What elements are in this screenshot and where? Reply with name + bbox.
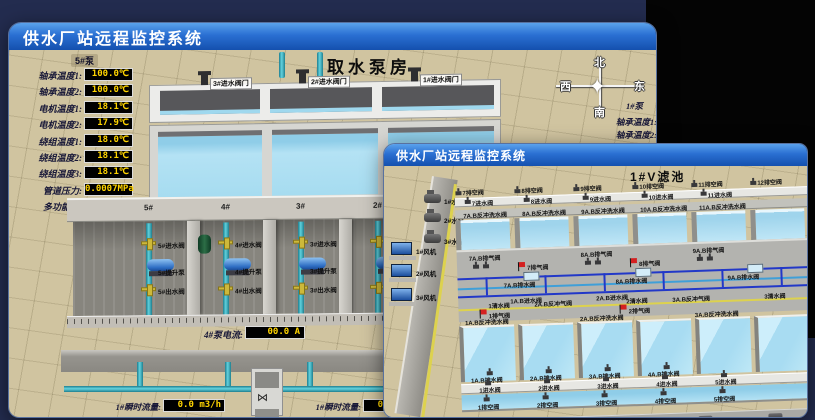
empty-valve-label[interactable]: 5排空阀 bbox=[714, 394, 736, 404]
inlet-valve-icon[interactable] bbox=[141, 241, 156, 245]
lcd-readout: 18.1℃ bbox=[84, 166, 133, 179]
lcd-readout: 100.0℃ bbox=[84, 68, 133, 81]
empty-valve-icon[interactable] bbox=[602, 393, 608, 397]
drain-valve-icon[interactable] bbox=[455, 191, 461, 195]
water-channel bbox=[272, 128, 378, 196]
drain-valve-icon[interactable] bbox=[750, 181, 756, 185]
pipe-riser bbox=[603, 273, 606, 291]
inlet-valve-label[interactable]: 4进水阀 bbox=[656, 379, 678, 389]
backwash-valve-label[interactable]: 8A.B反冲洗水阀 bbox=[522, 208, 566, 219]
pipe-gallery: 7A.B排气阀8A.B排气阀9A.B排气阀7排气阀8排气阀7A.B排水阀8A.B… bbox=[456, 238, 808, 322]
water-pump-icon[interactable] bbox=[424, 234, 441, 243]
blower-icon[interactable] bbox=[391, 288, 412, 301]
lcd-readout: 0.0 m3/h bbox=[163, 399, 225, 412]
flow-meter: 1#瞬时流量:0.0 m3/h bbox=[97, 399, 225, 413]
empty-valve-icon[interactable] bbox=[484, 397, 490, 401]
panel-label: 绕组温度3: bbox=[39, 167, 83, 180]
backwash-valve-label[interactable]: 7A.B反冲洗水阀 bbox=[463, 210, 507, 221]
intake-valve-label[interactable]: 3#进水阀门 bbox=[210, 77, 252, 90]
inlet-valve-label[interactable]: 9进水阀 bbox=[590, 194, 612, 204]
air-valve-flag-icon bbox=[631, 258, 637, 263]
empty-valve-icon[interactable] bbox=[719, 389, 725, 393]
drain-valve-label[interactable]: 7排空阀 bbox=[462, 187, 484, 197]
gallery-inlet-label[interactable]: 2A.B进水阀 bbox=[596, 292, 628, 302]
compass-west: 西 bbox=[560, 78, 571, 94]
water-pump-icon[interactable] bbox=[424, 213, 441, 222]
panel-label: 电机温度2: bbox=[39, 118, 83, 131]
empty-valve-label[interactable]: 1排空阀 bbox=[478, 402, 500, 412]
inlet-valve-icon[interactable] bbox=[465, 200, 471, 204]
inlet-valve-label[interactable]: 2进水阀 bbox=[538, 383, 560, 393]
empty-valve-label[interactable]: 2排空阀 bbox=[537, 400, 559, 410]
left-equipment-column: 1#水泵2#水泵3#水泵1#风机2#风机3#风机 bbox=[384, 176, 459, 326]
outlet-valve-label[interactable]: 5#出水阀 bbox=[158, 286, 185, 296]
cabinet-window bbox=[255, 372, 279, 388]
filter-cell bbox=[573, 214, 628, 246]
compass-north: 北 bbox=[594, 54, 605, 70]
drain-valve-label[interactable]: 7A.B排水阀 bbox=[504, 280, 536, 290]
filter-pool-window: 供水厂站远程监控系统 1#V滤池 1#水泵2#水泵3#水泵1#风机2#风机3#风… bbox=[383, 143, 808, 418]
intake-valve-label[interactable]: 2#进水阀门 bbox=[308, 76, 350, 89]
flow-meter-label: 1#瞬时流量: bbox=[116, 401, 161, 413]
bay-number: 2# bbox=[373, 201, 382, 210]
water-channel bbox=[158, 130, 262, 198]
outlet-wall bbox=[61, 350, 383, 372]
empty-valve-label[interactable]: 4排空阀 bbox=[655, 396, 677, 406]
filter-pool bbox=[754, 314, 808, 372]
intake-valve-icon[interactable] bbox=[201, 74, 208, 85]
filter-block: 7A.B排气阀8A.B排气阀9A.B排气阀7排气阀8排气阀7A.B排水阀8A.B… bbox=[454, 174, 808, 418]
air-valve-flag-icon bbox=[620, 304, 626, 309]
inlet-valve-label[interactable]: 4#进水阀 bbox=[235, 239, 262, 249]
blower-label[interactable]: 2#风机 bbox=[416, 268, 436, 278]
panel-label: 电机温度1: bbox=[39, 102, 83, 115]
inlet-valve-icon[interactable] bbox=[583, 196, 589, 200]
drain-valve-label[interactable]: 10排空阀 bbox=[639, 181, 664, 191]
pipe-riser bbox=[662, 271, 665, 289]
clean-valve-label[interactable]: 1清水阀 bbox=[488, 301, 510, 311]
channel-opening bbox=[382, 85, 494, 111]
backwash-valve-label[interactable]: 10A.B反冲洗水阀 bbox=[640, 203, 687, 214]
air-valve-flag-icon bbox=[519, 262, 525, 267]
intake-valve-icon[interactable] bbox=[299, 72, 306, 83]
exhaust-valve-icon[interactable] bbox=[483, 264, 489, 268]
inlet-valve-icon[interactable] bbox=[642, 194, 648, 198]
channel-opening bbox=[160, 89, 260, 115]
air-valve-label[interactable]: 7排气阀 bbox=[527, 262, 549, 272]
pump-panel-header: 5#泵 bbox=[71, 54, 98, 67]
outlet-valve-icon[interactable] bbox=[141, 287, 156, 291]
compass-star-icon: ✦ bbox=[588, 74, 606, 100]
blower-icon[interactable] bbox=[698, 416, 712, 418]
cabinet-base bbox=[255, 409, 279, 418]
lift-pump-label[interactable]: 4#提升泵 bbox=[235, 266, 262, 276]
blower-label[interactable]: 1#风机 bbox=[416, 246, 436, 256]
outlet-valve-label[interactable]: 4#出水阀 bbox=[235, 285, 262, 295]
panel-row: 轴承温度2:100.0℃ bbox=[15, 84, 133, 99]
inlet-valve-icon[interactable] bbox=[218, 240, 233, 244]
front-window-title: 供水厂站远程监控系统 bbox=[396, 147, 526, 164]
inlet-valve-icon[interactable] bbox=[293, 240, 308, 244]
panel-row: 电机温度2:17.9℃ bbox=[15, 117, 133, 132]
inlet-valve-label[interactable]: 7进水阀 bbox=[472, 198, 494, 208]
intake-valve-icon[interactable] bbox=[411, 70, 418, 81]
air-valve-label[interactable]: 2排气阀 bbox=[629, 306, 651, 316]
water-pump-icon[interactable] bbox=[424, 194, 441, 203]
empty-valve-label[interactable]: 3排空阀 bbox=[596, 398, 618, 408]
blower-icon[interactable] bbox=[768, 413, 782, 418]
pipe bbox=[317, 52, 323, 78]
inlet-valve-label[interactable]: 11进水阀 bbox=[708, 190, 733, 200]
drain-valve-label[interactable]: 11排空阀 bbox=[698, 179, 723, 189]
filter-pool bbox=[695, 316, 752, 374]
inlet-valve-label[interactable]: 3#进水阀 bbox=[310, 238, 337, 248]
air-valve-flag-icon bbox=[481, 309, 487, 314]
drain-valve-icon[interactable] bbox=[514, 189, 520, 193]
valve-icon: ⋈ bbox=[257, 391, 268, 404]
bay-number: 3# bbox=[296, 202, 305, 211]
empty-valve-icon[interactable] bbox=[543, 395, 549, 399]
exhaust-valve-icon[interactable] bbox=[707, 256, 713, 260]
main-pipe bbox=[64, 386, 384, 392]
lift-pump-label[interactable]: 3#提升泵 bbox=[310, 265, 337, 275]
back-window-titlebar[interactable]: 供水厂站远程监控系统 bbox=[9, 23, 656, 50]
exhaust-valve-icon[interactable] bbox=[697, 257, 703, 261]
exhaust-valve-icon[interactable] bbox=[585, 261, 591, 265]
outlet-valve-icon[interactable] bbox=[218, 286, 233, 290]
clean-valve-label[interactable]: 3清水阀 bbox=[764, 291, 786, 301]
lcd-readout: 18.1℃ bbox=[84, 101, 133, 114]
tank-icon[interactable] bbox=[198, 235, 211, 254]
panel-row: 电机温度1:18.1℃ bbox=[15, 101, 133, 116]
pillar bbox=[187, 221, 200, 315]
blower-icon[interactable] bbox=[391, 264, 412, 277]
flow-meter-label: 1#瞬时流量: bbox=[316, 401, 361, 413]
bay-number: 5# bbox=[144, 203, 153, 212]
compass-south: 南 bbox=[594, 104, 605, 120]
filter-cell bbox=[455, 218, 510, 250]
empty-valve-icon[interactable] bbox=[660, 391, 666, 395]
panel-label: 轴承温度2: bbox=[616, 129, 657, 141]
outlet-valve-label[interactable]: 3#出水阀 bbox=[310, 284, 337, 294]
blower-label[interactable]: 3#风机 bbox=[416, 292, 436, 302]
intake-valves: 3#进水阀门2#进水阀门1#进水阀门 bbox=[149, 73, 501, 79]
bay-number: 4# bbox=[221, 202, 230, 211]
drain-valve-label[interactable]: 8A.B排水阀 bbox=[615, 276, 647, 286]
pipe bbox=[279, 52, 285, 78]
panel-label: 轴承温度1: bbox=[616, 116, 657, 128]
air-valve-label[interactable]: 8排气阀 bbox=[639, 258, 661, 268]
lcd-readout: 100.0℃ bbox=[84, 84, 133, 97]
drain-valve-label[interactable]: 12排空阀 bbox=[757, 177, 782, 187]
pipe-riser bbox=[485, 277, 488, 295]
blower-icon[interactable] bbox=[391, 242, 412, 255]
panel-label: 轴承温度1: bbox=[39, 69, 83, 82]
clean-valve-label[interactable]: 2A.B反冲气阀 bbox=[534, 298, 572, 308]
panel-row: 管道压力:0.0007MPa bbox=[15, 183, 133, 198]
pipe-riser bbox=[721, 269, 724, 287]
panel-row: 绕组温度3:18.1℃ bbox=[15, 166, 133, 181]
filter-cell bbox=[691, 210, 746, 242]
outlet-valve-icon[interactable] bbox=[293, 286, 308, 290]
lcd-readout: 18.0℃ bbox=[84, 134, 133, 147]
filter-cell bbox=[750, 208, 805, 240]
panel-row: 绕组温度2:18.1℃ bbox=[15, 150, 133, 165]
panel-label: 管道压力: bbox=[43, 184, 82, 197]
lift-pump-label[interactable]: 5#提升泵 bbox=[158, 267, 185, 277]
inlet-valve-label[interactable]: 10进水阀 bbox=[649, 192, 674, 202]
clean-valve-label[interactable]: 3A.B反冲气阀 bbox=[672, 294, 710, 304]
drain-valve-icon[interactable] bbox=[632, 185, 638, 189]
lcd-readout: 0.0007MPa bbox=[84, 183, 133, 196]
drain-valve-icon[interactable] bbox=[573, 187, 579, 191]
inlet-valve-label[interactable]: 5#进水阀 bbox=[158, 240, 185, 250]
panel-row: 绕组温度1:18.0℃ bbox=[15, 134, 133, 149]
inlet-valve-label[interactable]: 3进水阀 bbox=[597, 381, 619, 391]
compass-east: 东 bbox=[634, 78, 645, 94]
backwash-valve-label[interactable]: 9A.B反冲洗水阀 bbox=[581, 205, 625, 216]
desktop: 供水厂站远程监控系统 5#泵 轴承温度1:100.0℃轴承温度2:100.0℃电… bbox=[0, 0, 815, 420]
pipe-riser bbox=[544, 275, 547, 293]
outlet-pipe bbox=[137, 362, 143, 388]
right-panel-header: 1#泵 bbox=[626, 100, 643, 112]
lcd-readout: 18.1℃ bbox=[84, 150, 133, 163]
panel-label: 绕组温度1: bbox=[39, 135, 83, 148]
outlet-pipe bbox=[307, 362, 313, 388]
pipe-riser bbox=[780, 267, 783, 285]
backwash-valve-label[interactable]: 11A.B反冲洗水阀 bbox=[699, 201, 746, 212]
lcd-readout: 17.9℃ bbox=[84, 117, 133, 130]
filter-cell bbox=[632, 212, 687, 244]
filter-pool-scene: 1#V滤池 1#水泵2#水泵3#水泵1#风机2#风机3#风机 7A.B排气阀8A… bbox=[384, 166, 807, 418]
panel-label: 绕组温度2: bbox=[39, 151, 83, 164]
exhaust-valve-icon[interactable] bbox=[473, 265, 479, 269]
drain-valve-label[interactable]: 8排空阀 bbox=[521, 185, 543, 195]
pillar bbox=[263, 220, 276, 314]
panel-row: 轴承温度1:100.0℃ bbox=[15, 68, 133, 83]
back-window-title: 供水厂站远程监控系统 bbox=[23, 25, 203, 49]
clean-valve-label[interactable]: 2清水阀 bbox=[626, 296, 648, 306]
inlet-valve-label[interactable]: 5进水阀 bbox=[715, 377, 737, 387]
inlet-valve-icon[interactable] bbox=[524, 198, 530, 202]
pillar bbox=[339, 219, 352, 313]
inlet-valve-icon[interactable] bbox=[701, 192, 707, 196]
drain-valve-label[interactable]: 9A.B排水阀 bbox=[727, 272, 759, 282]
channel-opening bbox=[270, 87, 372, 113]
current-meter: 4#泵电流:00.0 A bbox=[169, 326, 305, 340]
outlet-pipe bbox=[225, 362, 231, 388]
lcd-readout: 00.0 A bbox=[245, 326, 305, 339]
current-meter-label: 4#泵电流: bbox=[204, 328, 243, 341]
intake-valve-label[interactable]: 1#进水阀门 bbox=[420, 74, 462, 87]
flow-valve-cabinet[interactable]: ⋈ bbox=[251, 368, 283, 416]
inlet-valve-label[interactable]: 8进水阀 bbox=[531, 196, 553, 206]
inlet-valve-label[interactable]: 1进水阀 bbox=[479, 385, 501, 395]
drain-valve-icon[interactable] bbox=[691, 183, 697, 187]
drain-valve-label[interactable]: 9排空阀 bbox=[580, 183, 602, 193]
front-window-titlebar[interactable]: 供水厂站远程监控系统 bbox=[384, 144, 807, 166]
filter-cell bbox=[514, 216, 569, 248]
exhaust-valve-icon[interactable] bbox=[595, 260, 601, 264]
panel-label: 轴承温度2: bbox=[39, 85, 83, 98]
